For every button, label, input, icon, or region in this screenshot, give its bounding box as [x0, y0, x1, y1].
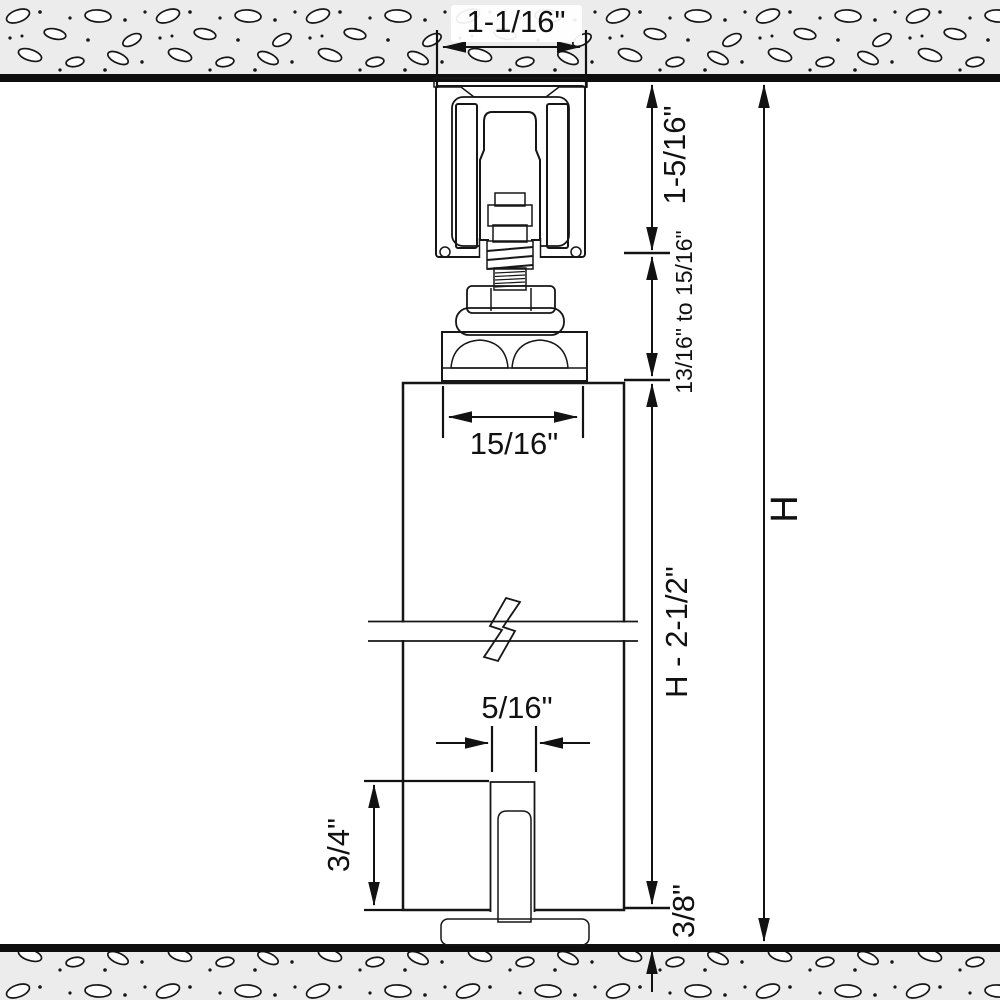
roller-assembly	[456, 104, 568, 248]
dim-label-track-width: 1-1/16"	[467, 4, 566, 39]
dim-label-adjustment-range: 13/16" to 15/16"	[671, 230, 697, 393]
dim-label-opening-height: H	[764, 495, 806, 522]
dim-label-groove-depth: 3/4"	[321, 818, 356, 872]
adjustment-washer	[456, 308, 564, 335]
break-line	[368, 598, 638, 661]
dim-label-door-height: H - 2-1/2"	[659, 566, 694, 698]
roller-tire-left	[456, 104, 477, 248]
dim-opening-height: H	[764, 85, 806, 941]
technical-drawing: 1-1/16" 1-5/16" 13/16" to 15/16" H - 2-1…	[0, 0, 1000, 1000]
floor-concrete	[0, 952, 1000, 1000]
floor-guide-groove	[491, 782, 535, 912]
drawing-svg: 1-1/16" 1-5/16" 13/16" to 15/16" H - 2-1…	[0, 0, 1000, 1000]
dim-door-height: H - 2-1/2"	[624, 384, 694, 908]
dim-track-height: 1-5/16"	[624, 85, 692, 253]
dim-groove-depth: 3/4"	[321, 781, 489, 910]
dim-label-track-height: 1-5/16"	[657, 106, 692, 205]
dim-label-floor-clearance: 3/8"	[666, 884, 701, 938]
dim-hanger-plate-width: 15/16"	[443, 386, 583, 462]
track-lip-notch-right	[571, 247, 581, 257]
track-lip-notch-left	[440, 247, 450, 257]
dim-label-groove-width: 5/16"	[481, 690, 552, 725]
roller-tire-right	[547, 104, 568, 248]
floor-guide-base	[441, 919, 589, 945]
dim-label-hanger-plate-width: 15/16"	[470, 426, 559, 461]
hanger-bracket	[442, 332, 587, 381]
dim-groove-width: 5/16"	[436, 690, 590, 772]
dim-adjustment-range: 13/16" to 15/16"	[624, 230, 697, 393]
